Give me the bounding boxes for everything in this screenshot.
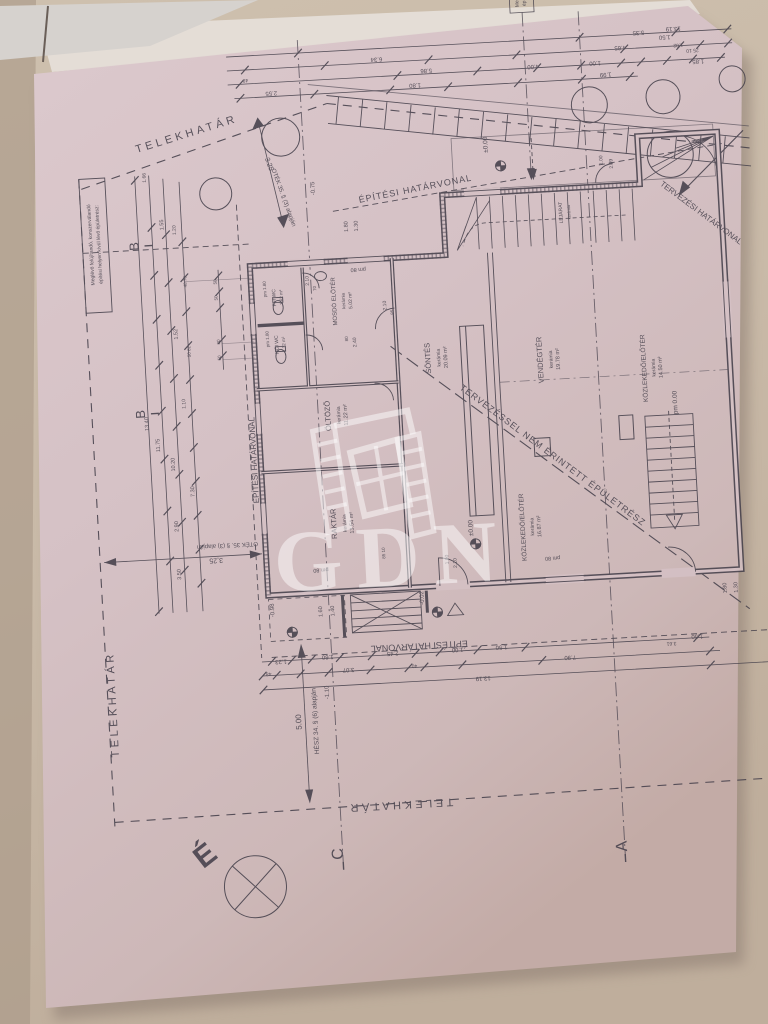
plan-label: 13.19 — [475, 674, 491, 681]
plan-label: 2.55 — [265, 89, 278, 96]
plan-label: 3.61 — [666, 640, 676, 647]
plan-label: 1.60 — [321, 653, 334, 660]
plan-label: 7.90 — [563, 653, 576, 660]
plan-label: 3.07 — [342, 666, 355, 673]
plan-label: 3.50 — [177, 569, 184, 580]
plan-label: LEJÁRAT — [557, 202, 565, 224]
plan-label: 13.40 — [144, 417, 151, 431]
plan-label: pm 80 — [350, 266, 366, 273]
plan-label: 16.87 m² — [536, 515, 543, 537]
plan-label: kerámia — [651, 358, 658, 376]
plan-label: 1.50 — [690, 632, 703, 639]
plan-label: 48 78 — [182, 275, 188, 287]
plan-label: 85 — [389, 309, 394, 315]
plan-label: 1.20 — [171, 225, 178, 235]
plan-label: 2.10 — [304, 276, 311, 286]
plan-label: 1.80 — [408, 81, 421, 88]
plan-label: 1.66 — [141, 173, 148, 183]
plan-label: 7.30 — [190, 486, 197, 497]
plan-label: kerámia — [529, 517, 536, 535]
plan-label: 2.90 — [174, 521, 181, 532]
plan-label: pm 1.80 — [264, 330, 270, 347]
gdn-watermark-text: GDN — [271, 503, 513, 612]
plan-label: pm 0.00 — [671, 390, 679, 414]
plan-label: Me — [514, 0, 520, 7]
plan-label: 80 — [216, 339, 221, 345]
plan-label: 4.65 — [614, 44, 627, 51]
plan-label: 1.80 — [343, 221, 350, 232]
plan-label: pm 80 — [545, 554, 561, 561]
plan-label: 1.80 — [722, 582, 729, 593]
plan-label: 2.40 — [352, 337, 359, 347]
plan-label: 1.99 — [599, 71, 612, 78]
plan-label: kerámia — [548, 350, 555, 368]
plan-label: 20.09 m² — [443, 346, 450, 368]
plan-label: 1.55 — [159, 219, 166, 230]
plan-label: FFI WC — [271, 289, 278, 307]
plan-label: 70 — [312, 285, 317, 291]
plan-label: 48 — [242, 77, 248, 83]
plan-label: 80 — [344, 336, 349, 342]
plan-label: B — [126, 242, 141, 251]
plan-label: 50 82 — [186, 345, 192, 357]
plan-label: 1.85 — [691, 57, 704, 64]
plan-label: 48 — [265, 670, 271, 676]
floorplan-photo-svg: TELEKHATÁRTELEKHATÁRTELEKHATÁRÉPÍTÉSI HA… — [0, 0, 768, 1024]
plan-label: 1.30 — [353, 220, 360, 231]
plan-label: ép — [521, 0, 527, 6]
plan-label: 14.50 m² — [658, 356, 665, 378]
plan-label: 25 10 — [686, 47, 699, 54]
plan-label: 19.78 m² — [555, 348, 562, 370]
plan-label: 1.50 — [495, 643, 508, 650]
plan-label: 5.86 — [419, 67, 432, 74]
floorplan-photo: TELEKHATÁRTELEKHATÁRTELEKHATÁRÉPÍTÉSI HA… — [0, 0, 768, 1024]
plan-label: 2.49 — [608, 158, 615, 168]
plan-label: 1.32 m² — [281, 336, 287, 352]
plan-label: 3,25 — [209, 556, 223, 564]
plan-label: 13.19 — [665, 25, 681, 32]
plan-label: 1.10 — [181, 399, 188, 409]
plan-label: kerámia — [566, 204, 572, 219]
plan-label: 10.20 — [170, 458, 177, 472]
plan-label: 1.00 — [598, 155, 605, 165]
plan-label: kerámia — [436, 348, 443, 366]
plan-label: 40 — [411, 662, 417, 668]
plan-label: 1.30 — [733, 582, 740, 593]
plan-label: NŐI WC — [273, 335, 281, 354]
plan-label: pm 1.80 — [262, 281, 268, 298]
plan-label: ±0.00 — [482, 136, 490, 153]
plan-label: -0.75 — [310, 181, 317, 196]
plan-label: -1.10 — [324, 685, 331, 700]
plan-label: 2.45 — [386, 649, 399, 656]
plan-label: 1.23 — [274, 658, 287, 665]
plan-label: 1.02 — [673, 42, 683, 49]
plan-label: 1.00 — [588, 59, 601, 66]
plan-label: 5.02 m² — [347, 291, 354, 309]
plan-label: 50 — [217, 355, 222, 361]
plan-label: 4.00 — [526, 63, 539, 70]
plan-label: 1.52 — [173, 329, 180, 340]
plan-label: 1.50 — [658, 33, 671, 40]
plan-label: 5.00 — [294, 713, 304, 730]
plan-label: 5.35 — [632, 29, 645, 36]
plan-label: kerámia — [340, 292, 346, 309]
plan-label: SÖNTÉS — [422, 343, 433, 374]
plan-label: C — [329, 848, 347, 860]
plan-label: 1.00 — [451, 646, 464, 653]
plan-label: 6.34 — [370, 55, 383, 62]
plan-label: 50 — [212, 279, 217, 285]
plan-label: 11.75 — [155, 439, 162, 453]
background-shadow-strip — [0, 0, 36, 1024]
plan-label: 2.10 — [382, 300, 389, 310]
plan-label: A — [613, 840, 631, 852]
plan-label: 1.62 m² — [278, 289, 284, 305]
plan-label: 50 — [213, 295, 218, 301]
